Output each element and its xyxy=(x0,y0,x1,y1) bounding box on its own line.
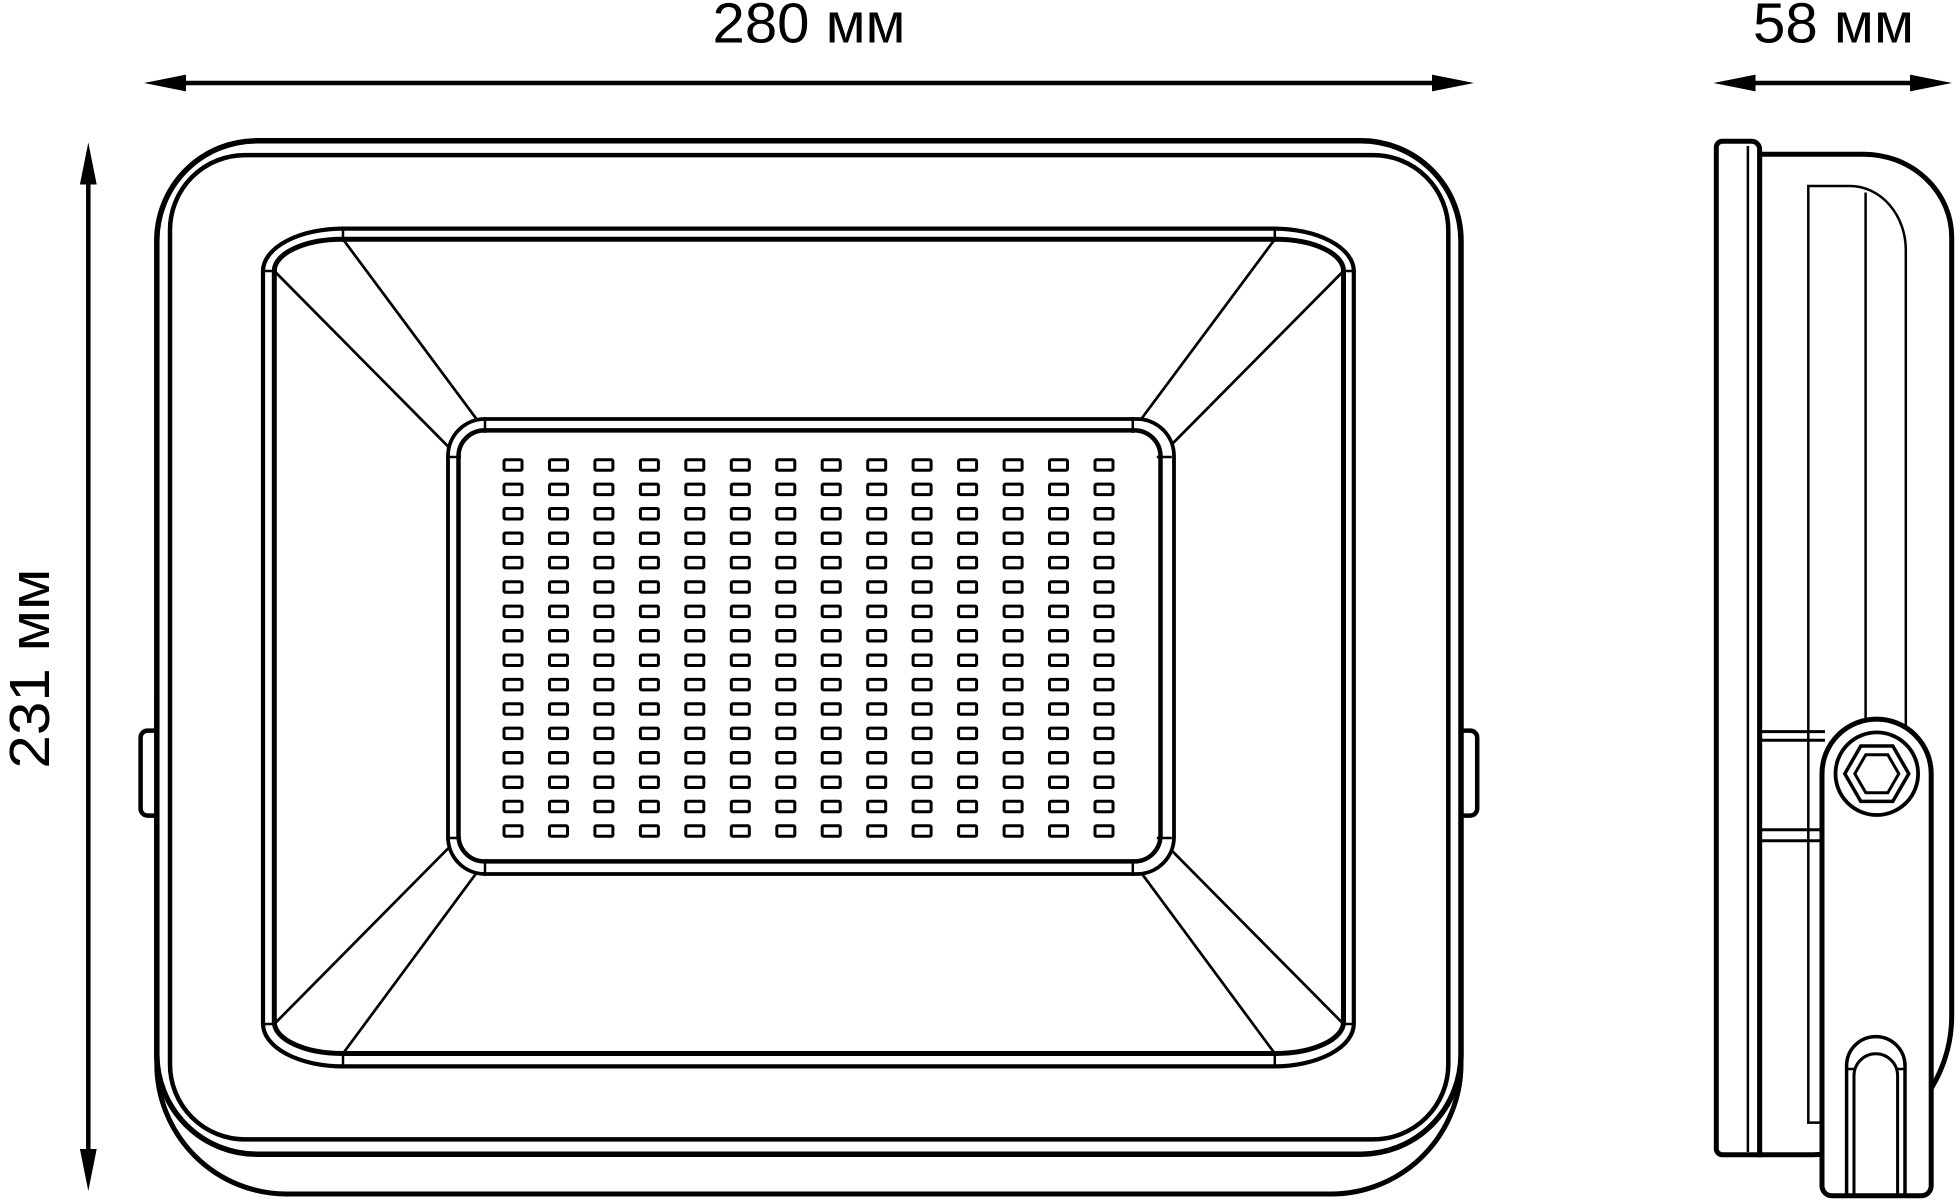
svg-text:58 мм: 58 мм xyxy=(1753,0,1914,56)
svg-text:280 мм: 280 мм xyxy=(713,0,906,56)
svg-text:231 мм: 231 мм xyxy=(0,569,62,769)
